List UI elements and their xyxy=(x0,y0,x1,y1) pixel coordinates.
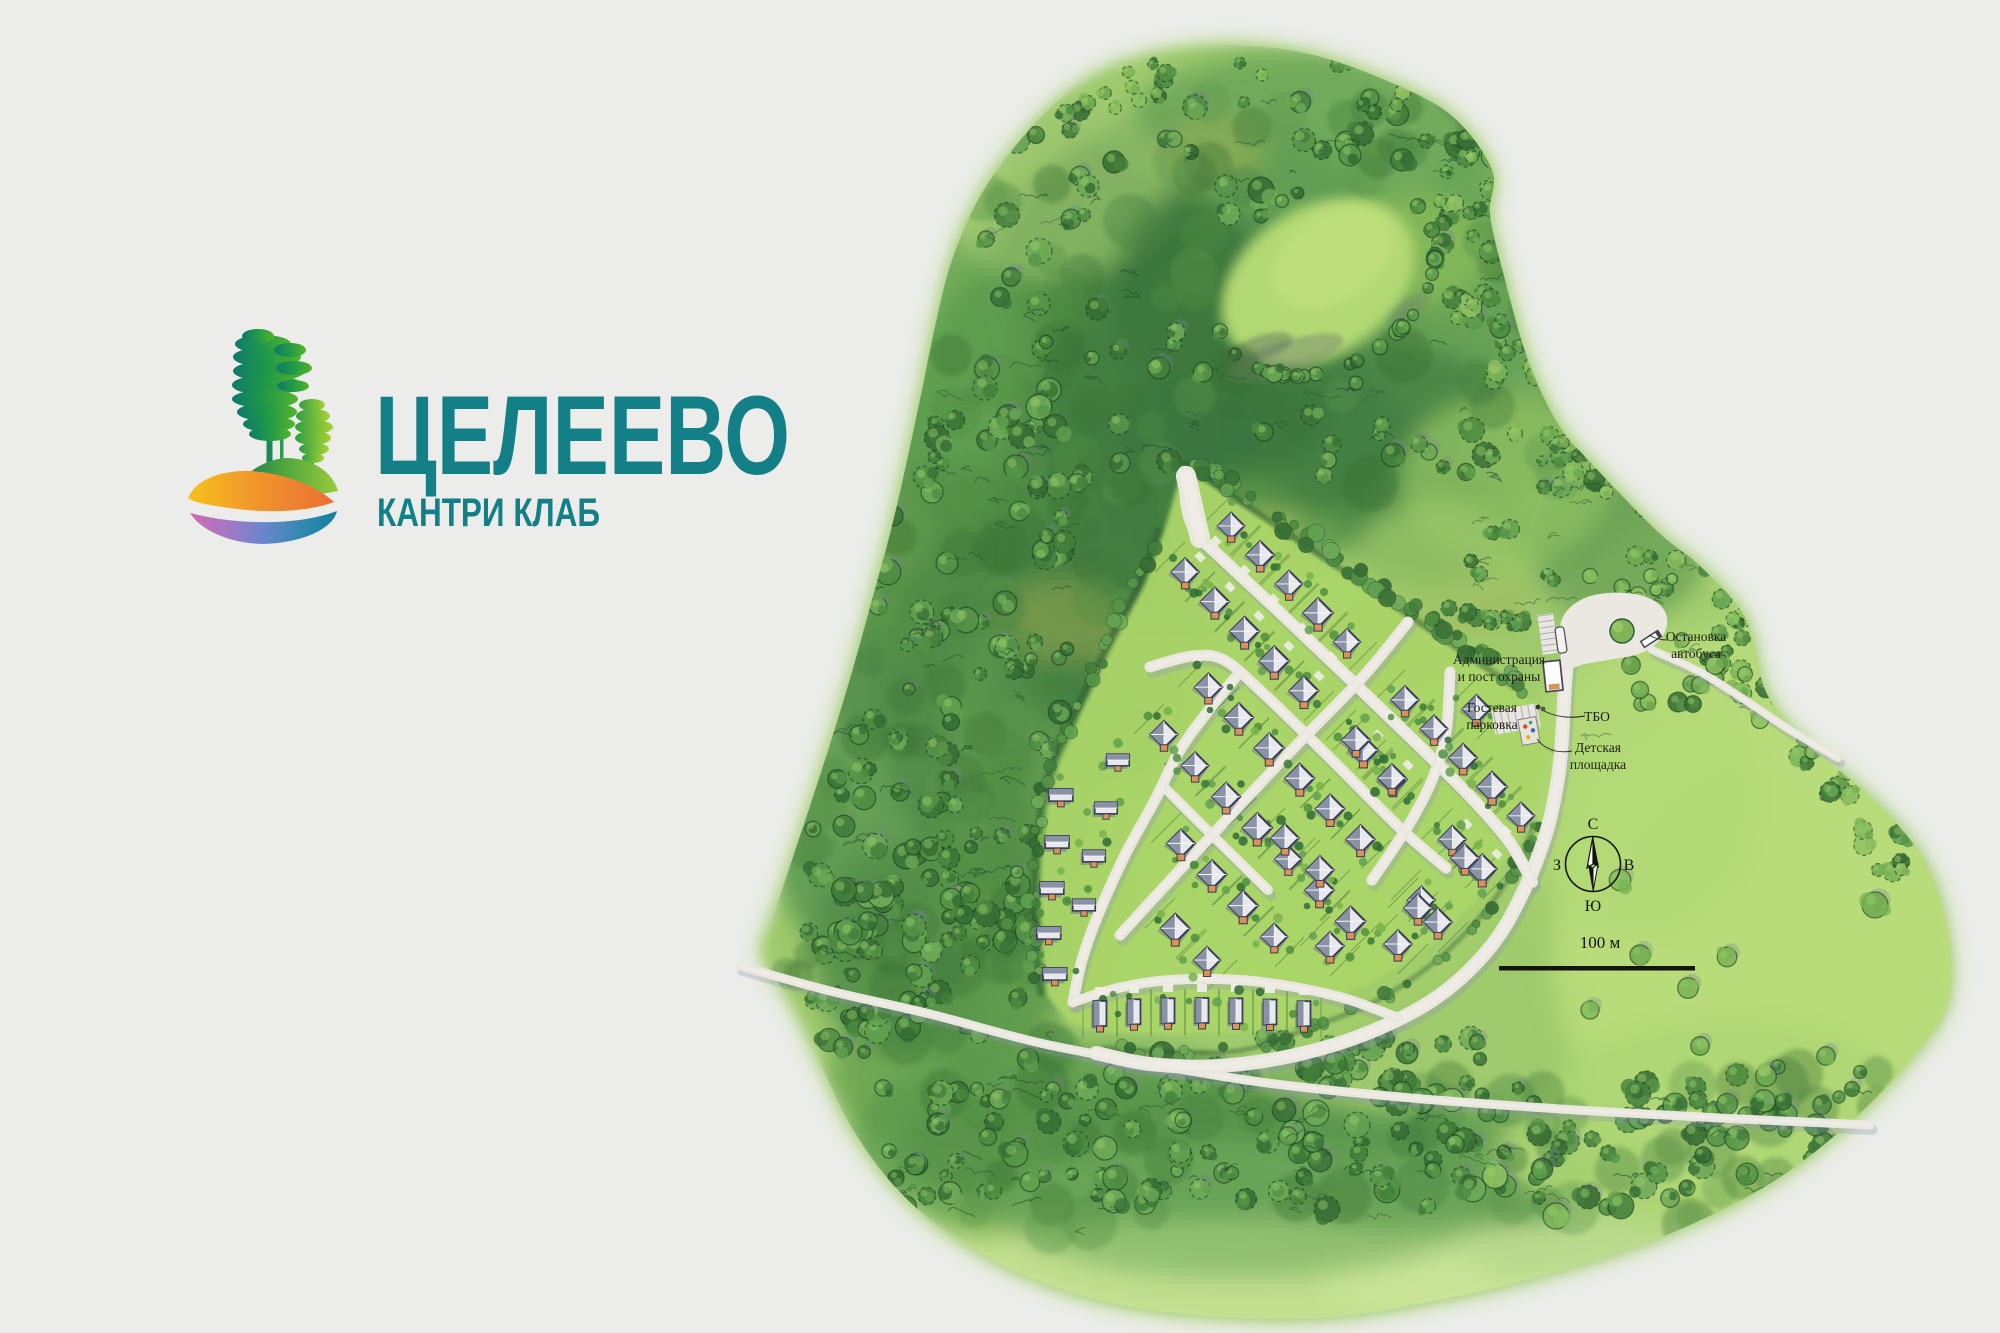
svg-text:парковка: парковка xyxy=(1466,717,1517,732)
svg-text:В: В xyxy=(1624,857,1635,874)
svg-text:З: З xyxy=(1553,857,1561,874)
svg-text:ЦЕЛЕЕВО: ЦЕЛЕЕВО xyxy=(375,373,790,498)
svg-text:площадка: площадка xyxy=(1570,757,1626,772)
svg-text:С: С xyxy=(1588,816,1599,833)
svg-text:Администрация: Администрация xyxy=(1453,652,1545,667)
svg-text:КАНТРИ КЛАБ: КАНТРИ КЛАБ xyxy=(377,491,600,535)
svg-text:ТБО: ТБО xyxy=(1584,709,1610,724)
svg-text:автобуса: автобуса xyxy=(1671,646,1721,661)
svg-text:Детская: Детская xyxy=(1575,740,1621,755)
svg-text:и пост охраны: и пост охраны xyxy=(1458,669,1540,684)
svg-text:Ю: Ю xyxy=(1585,898,1601,915)
svg-text:100 м: 100 м xyxy=(1580,933,1621,952)
svg-text:Гостевая: Гостевая xyxy=(1467,700,1517,715)
svg-text:Остановка: Остановка xyxy=(1666,629,1727,644)
